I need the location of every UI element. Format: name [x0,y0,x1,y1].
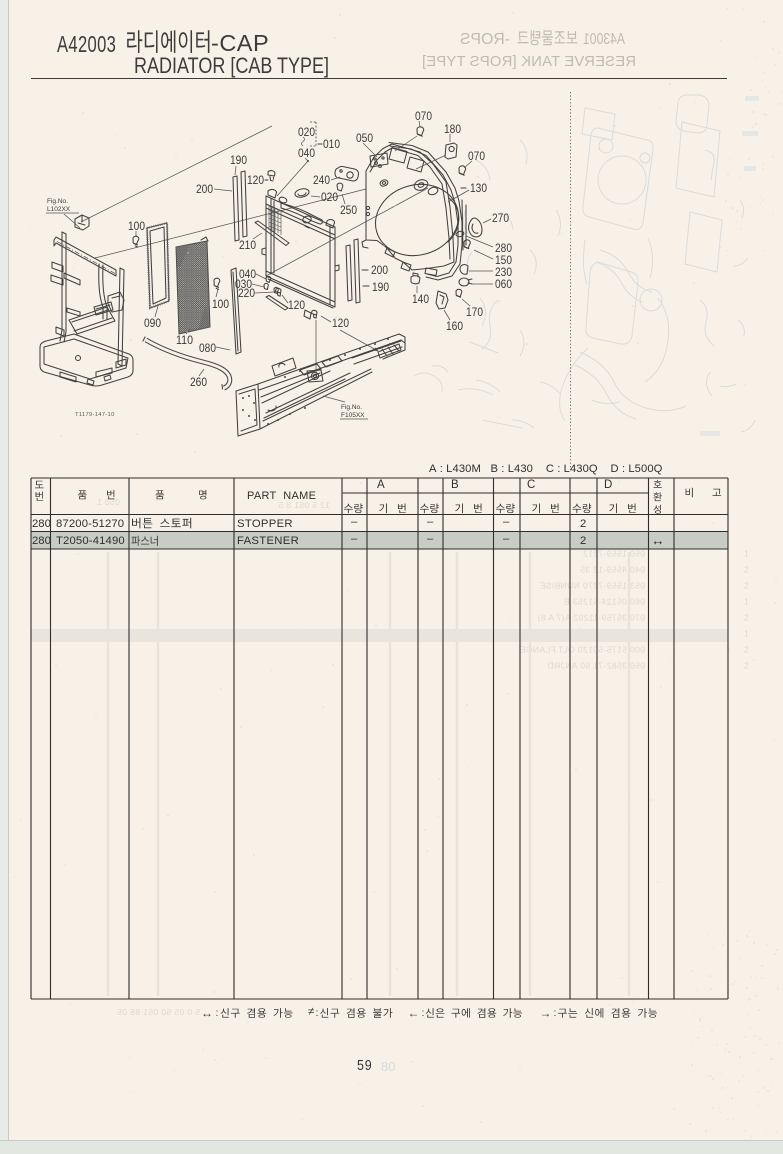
svg-text:220: 220 [238,286,255,300]
svg-text:080: 080 [199,341,216,355]
svg-text:040 4559-12 35: 040 4559-12 35 [580,565,645,575]
svg-text:000 5175-50120 OLT.FLANGE: 000 5175-50120 OLT.FLANGE [519,645,645,655]
svg-text:130: 130 [470,181,487,195]
svg-text:270: 270 [492,211,509,225]
svg-text:190: 190 [230,153,247,167]
svg-text:140: 140 [412,292,429,306]
svg-text:160: 160 [446,319,463,333]
svg-text:070: 070 [468,149,485,163]
svg-text:070: 070 [415,109,432,123]
svg-text:060 05124-51253 B: 060 05124-51253 B [564,597,645,607]
svg-text:040: 040 [298,146,315,160]
svg-text:250: 250 [340,203,357,217]
svg-text:200: 200 [196,182,213,196]
svg-text:5 0 05 50 051 86 05: 5 0 05 50 051 86 05 [117,1007,200,1017]
svg-text:F105XX: F105XX [341,412,365,419]
svg-text:190: 190 [372,280,389,294]
svg-text:050 3582-71 50 ANJRD: 050 3582-71 50 ANJRD [547,661,645,671]
svg-text:L102XX: L102XX [47,206,71,213]
svg-text:1: 1 [744,549,749,559]
svg-text:060: 060 [495,277,512,291]
svg-text:180: 180 [444,122,461,136]
svg-text:-ROPS: -ROPS [460,31,510,48]
svg-text:050: 050 [356,131,373,145]
svg-text:260: 260 [190,375,207,389]
svg-text:Fig.No.: Fig.No. [47,198,68,205]
svg-text:2: 2 [744,645,749,655]
svg-text:120: 120 [247,173,264,187]
svg-text:2: 2 [744,581,749,591]
svg-text:120: 120 [288,298,305,312]
svg-text:A43001: A43001 [583,31,625,48]
svg-text:2: 2 [744,613,749,623]
svg-text:Fig.No.: Fig.No. [341,404,362,411]
svg-text:100: 100 [128,219,145,233]
svg-text:200: 200 [371,263,388,277]
svg-text:240: 240 [313,173,330,187]
svg-text:100: 100 [212,297,229,311]
svg-text:050 1559-7212: 050 1559-7212 [583,549,645,559]
svg-text:2: 2 [744,565,749,575]
svg-text:1: 1 [744,597,749,607]
svg-text:T1179-147-10: T1179-147-10 [75,412,115,418]
svg-text:210: 210 [239,238,256,252]
svg-text:020: 020 [321,190,338,204]
svg-text:090: 090 [144,316,161,330]
svg-text:120: 120 [332,316,349,330]
svg-text:020: 020 [298,125,315,139]
svg-text:1: 1 [744,629,749,639]
svg-text:170: 170 [466,305,483,319]
svg-text:110: 110 [176,333,193,347]
svg-text:2: 2 [744,661,749,671]
svg-text:010: 010 [323,137,340,151]
